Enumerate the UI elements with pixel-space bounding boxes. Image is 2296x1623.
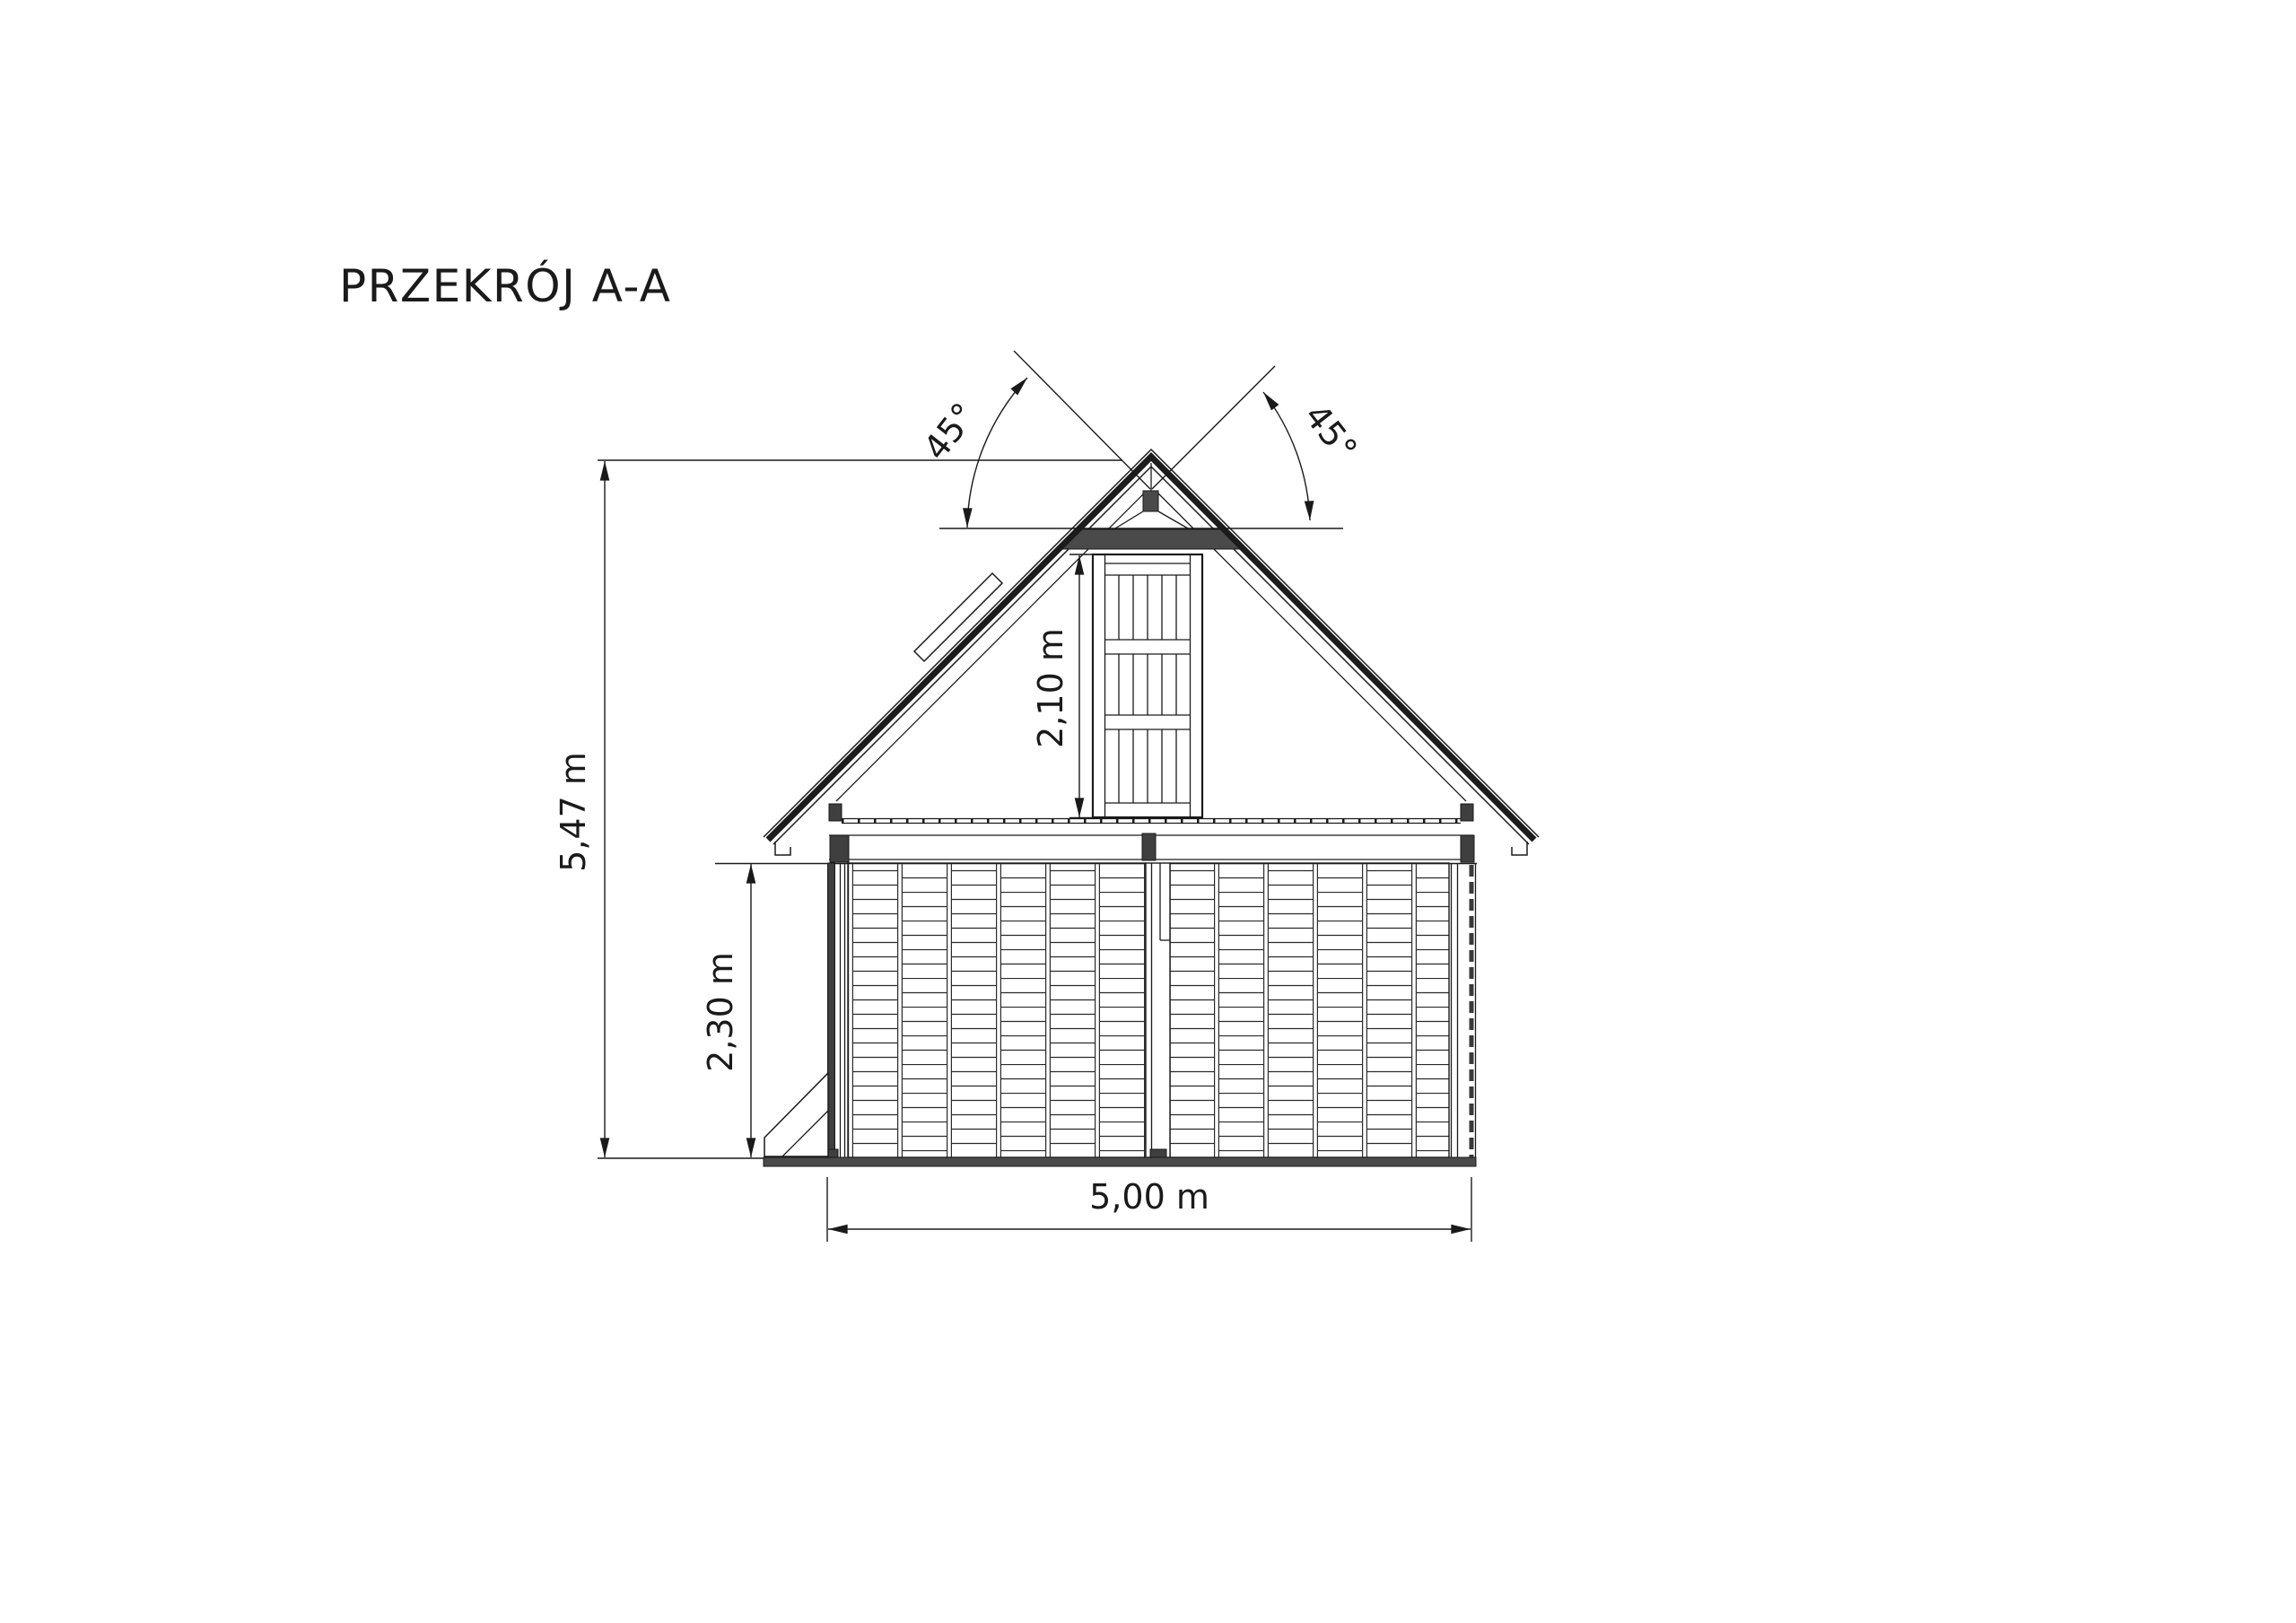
dim-label-width: 5,00 m: [1089, 1177, 1209, 1217]
ramp: [764, 1073, 828, 1156]
right-eave-fascia: [1512, 842, 1527, 855]
left-plank-wall: [848, 863, 1146, 1157]
angle-arc-right: [1263, 392, 1310, 520]
dim-label-wall-height: 2,30 m: [701, 952, 740, 1072]
attic-door: [1093, 554, 1202, 817]
dim-label-door-height: 2,10 m: [1031, 628, 1070, 748]
right-plank-wall: [1170, 863, 1449, 1157]
ridge-beam: [1143, 491, 1158, 511]
angle-arc-left: [967, 378, 1027, 528]
angle-label-left: 45°: [916, 396, 984, 467]
right-corner-beam: [1461, 835, 1474, 862]
left-corner-beam: [830, 835, 849, 862]
left-eave-fascia: [775, 842, 790, 855]
ground-slab: [764, 1157, 1476, 1166]
section-drawing: PRZEKRÓJ A-A 5,47 m 2,30 m 2,10 m 5,00 m…: [0, 0, 2296, 1623]
collar-beam: [1062, 529, 1240, 549]
angle-label-right: 45°: [1296, 397, 1365, 468]
left-sill-block: [828, 1149, 838, 1157]
ground-floor-walls: [828, 863, 1476, 1157]
drawing-sheet: PRZEKRÓJ A-A 5,47 m 2,30 m 2,10 m 5,00 m…: [0, 0, 2296, 1623]
drawing-title: PRZEKRÓJ A-A: [339, 259, 672, 312]
right-top-plate: [1461, 804, 1473, 821]
left-top-plate: [829, 804, 842, 821]
center-sill-block: [1150, 1149, 1166, 1157]
dim-label-total-height: 5,47 m: [554, 752, 593, 872]
center-post: [1146, 863, 1170, 1157]
center-post-beam: [1142, 833, 1156, 860]
